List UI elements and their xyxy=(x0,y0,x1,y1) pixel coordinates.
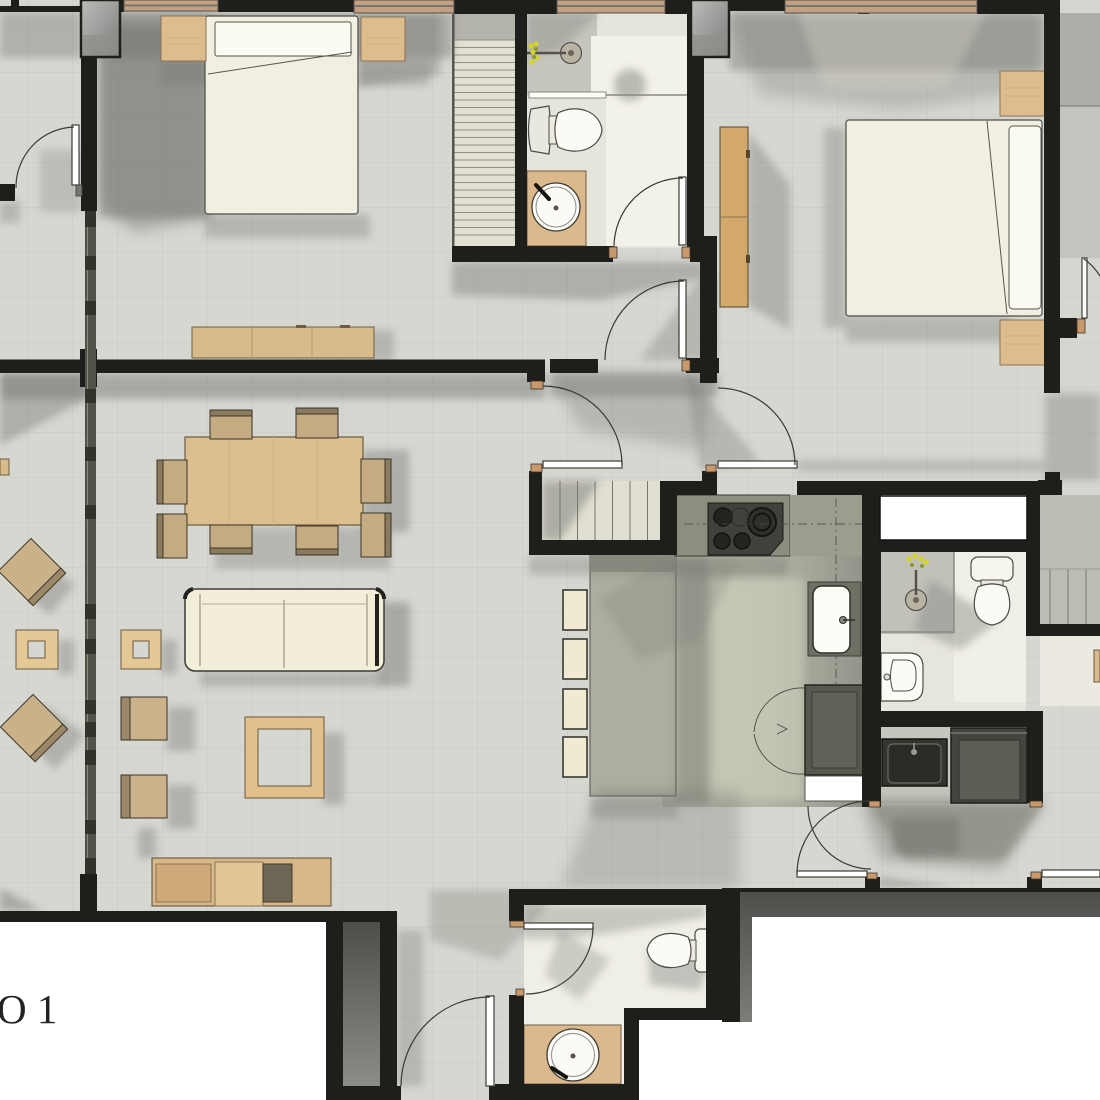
svg-text:O 1: O 1 xyxy=(0,986,57,1032)
